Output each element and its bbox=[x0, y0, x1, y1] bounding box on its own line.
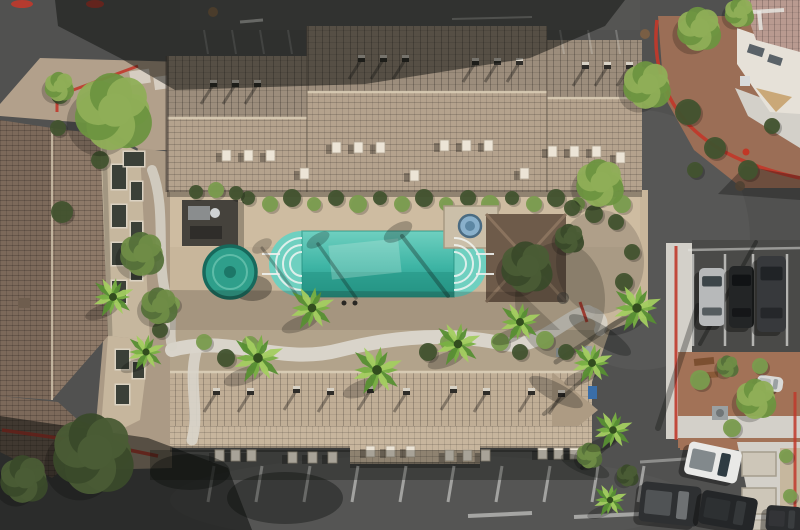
bbq-grill bbox=[210, 208, 220, 218]
bush bbox=[783, 489, 797, 503]
tree-crown bbox=[98, 93, 132, 127]
roof-vent-cap bbox=[450, 386, 457, 389]
palm-crown-center bbox=[454, 340, 463, 349]
roof-vent-cap bbox=[213, 388, 220, 391]
bbq-table bbox=[190, 226, 222, 239]
hedge-bush bbox=[307, 197, 321, 211]
chimney-shadow bbox=[238, 153, 244, 162]
bush bbox=[779, 449, 793, 463]
bush bbox=[704, 137, 726, 159]
chimney-cap bbox=[244, 150, 253, 161]
car-dark bbox=[724, 266, 754, 332]
tree-crown bbox=[77, 434, 112, 469]
palm-crown-center bbox=[308, 304, 317, 313]
vehicle-roof-detail bbox=[644, 489, 673, 516]
bush bbox=[217, 349, 235, 367]
tree-crown bbox=[591, 172, 612, 193]
palm-crown-center bbox=[609, 426, 617, 434]
palm-crown-center bbox=[109, 293, 117, 301]
hedge-bush bbox=[415, 189, 433, 207]
window bbox=[112, 165, 126, 189]
hedge-bush bbox=[262, 196, 278, 212]
chimney-shadow bbox=[404, 173, 410, 182]
chimney-cap bbox=[548, 146, 557, 157]
palm-crown-center bbox=[142, 348, 149, 355]
bush bbox=[51, 201, 73, 223]
manhole-2 bbox=[640, 29, 650, 39]
tree-crown bbox=[54, 80, 67, 93]
aerial-photo-viewport bbox=[0, 0, 800, 530]
top-building-lower-b bbox=[307, 92, 547, 192]
aerial-photo-scene bbox=[0, 0, 800, 530]
chimney-shadow bbox=[370, 145, 376, 154]
chimney-shadow bbox=[514, 171, 520, 180]
chimney-shadow bbox=[542, 149, 548, 158]
bottom-building-lower-right bbox=[480, 426, 592, 448]
vehicle-windshield bbox=[788, 510, 796, 529]
tree-crown bbox=[623, 470, 633, 480]
vehicle-windshield bbox=[732, 275, 751, 286]
left-building-roof-west bbox=[0, 120, 52, 400]
chimney-cap bbox=[410, 170, 419, 181]
shadow-bottom-tree-1 bbox=[227, 472, 343, 524]
bush bbox=[50, 120, 66, 136]
car-silver bbox=[694, 268, 725, 330]
tree-crown bbox=[690, 18, 709, 37]
chimney-cap bbox=[484, 140, 493, 151]
vehicle-rear-window bbox=[760, 308, 782, 319]
tree-crown bbox=[748, 389, 766, 407]
roof-vent-cap bbox=[293, 386, 300, 389]
tr-building-ac-unit bbox=[740, 76, 750, 86]
tree-crown bbox=[638, 74, 659, 95]
br-patio-1 bbox=[742, 452, 776, 476]
roof-vent-cap bbox=[483, 388, 490, 391]
t-marking-stem bbox=[759, 11, 761, 30]
window bbox=[116, 385, 129, 404]
vehicle-roof-detail bbox=[703, 497, 731, 521]
chimney-shadow bbox=[478, 143, 484, 152]
ac-bottom-right-fan bbox=[716, 409, 724, 417]
chimney-shadow bbox=[260, 153, 266, 162]
chimney-cap bbox=[332, 142, 341, 153]
window bbox=[112, 205, 126, 227]
tree-crown bbox=[15, 468, 36, 489]
chimney-shadow bbox=[294, 171, 300, 180]
palm-crown-center bbox=[253, 353, 263, 363]
chimney-shadow bbox=[586, 149, 592, 158]
roof-vent-cap bbox=[582, 62, 589, 65]
hedge-bush bbox=[526, 196, 542, 212]
tree bbox=[0, 455, 48, 507]
chimney-shadow bbox=[348, 145, 354, 154]
left-building-chimney bbox=[18, 298, 30, 308]
vehicle-windshield bbox=[702, 276, 722, 286]
roof-vent-cap bbox=[247, 388, 254, 391]
tree-crown bbox=[734, 6, 747, 19]
red-curb-top-left-1 bbox=[11, 0, 33, 8]
bush bbox=[608, 214, 624, 230]
shadow-bottom-tree-2 bbox=[150, 454, 230, 490]
bush bbox=[752, 358, 768, 374]
bush bbox=[229, 186, 243, 200]
chimney-shadow bbox=[216, 153, 222, 162]
roof-vent-cap bbox=[528, 388, 535, 391]
tree-crown bbox=[152, 297, 168, 313]
fire-hydrant bbox=[743, 149, 750, 156]
palm-crown-center bbox=[372, 365, 382, 375]
bush bbox=[512, 344, 528, 360]
cabana-dome bbox=[465, 221, 475, 231]
bush bbox=[738, 160, 758, 180]
palm-crown-center bbox=[516, 318, 524, 326]
roof-vent-cap bbox=[604, 62, 611, 65]
bush bbox=[536, 331, 554, 349]
chimney-shadow bbox=[564, 149, 570, 158]
walkway-path-exit-left bbox=[192, 352, 196, 440]
tree-crown bbox=[564, 232, 577, 245]
bush bbox=[208, 182, 224, 198]
palm-crown-center bbox=[632, 303, 641, 312]
chimney-cap bbox=[440, 140, 449, 151]
tree-crown bbox=[517, 255, 539, 277]
palm-crown-center bbox=[607, 497, 613, 503]
window bbox=[124, 152, 144, 166]
roof-vent-cap bbox=[626, 62, 633, 65]
bush bbox=[687, 162, 703, 178]
chimney-shadow bbox=[326, 145, 332, 154]
roof-vent-cap bbox=[403, 388, 410, 391]
spa-center bbox=[224, 266, 236, 278]
hedge-bush bbox=[328, 190, 344, 206]
bush bbox=[196, 334, 212, 350]
hedge-bush bbox=[373, 191, 387, 205]
chimney-cap bbox=[520, 168, 529, 179]
hedge-bush bbox=[283, 189, 301, 207]
chimney-cap bbox=[616, 152, 625, 163]
chimney-cap bbox=[266, 150, 275, 161]
hedge-bush bbox=[460, 190, 476, 206]
chimney-cap bbox=[570, 146, 579, 157]
window bbox=[131, 182, 142, 200]
bush bbox=[189, 185, 203, 199]
tree-crown bbox=[723, 361, 733, 371]
tree-crown bbox=[133, 243, 152, 262]
bush bbox=[723, 419, 741, 437]
bush bbox=[558, 344, 574, 360]
chimney-cap bbox=[222, 150, 231, 161]
suv-dark bbox=[752, 256, 786, 336]
chimney-cap bbox=[354, 142, 363, 153]
bbq-counter bbox=[188, 206, 210, 220]
roof-vent-cap bbox=[327, 388, 334, 391]
hedge-bush bbox=[505, 191, 519, 205]
palm-crown-center bbox=[588, 359, 596, 367]
bush bbox=[690, 370, 710, 390]
chimney-cap bbox=[462, 140, 471, 151]
recycle-bin bbox=[588, 386, 597, 399]
bush bbox=[675, 99, 701, 125]
chimney-shadow bbox=[434, 143, 440, 152]
truck-flatbed bbox=[633, 480, 702, 530]
vehicle-roof-detail bbox=[768, 510, 785, 527]
chimney-cap bbox=[376, 142, 385, 153]
chimney-shadow bbox=[456, 143, 462, 152]
vehicle-rear-window bbox=[732, 308, 751, 317]
hedge-bush bbox=[349, 195, 367, 213]
hedge-bush bbox=[547, 189, 565, 207]
bush bbox=[764, 118, 780, 134]
hedge-bush bbox=[394, 196, 410, 212]
bbq-shadow bbox=[238, 202, 244, 248]
vehicle-windshield bbox=[760, 267, 782, 281]
bush bbox=[615, 273, 633, 291]
vehicle-rear-window bbox=[702, 307, 722, 315]
top-building-lower-a bbox=[167, 118, 307, 192]
shadow-deck-band bbox=[170, 290, 560, 330]
chimney-cap bbox=[300, 168, 309, 179]
bush bbox=[624, 244, 640, 260]
chimney-cap bbox=[592, 146, 601, 157]
